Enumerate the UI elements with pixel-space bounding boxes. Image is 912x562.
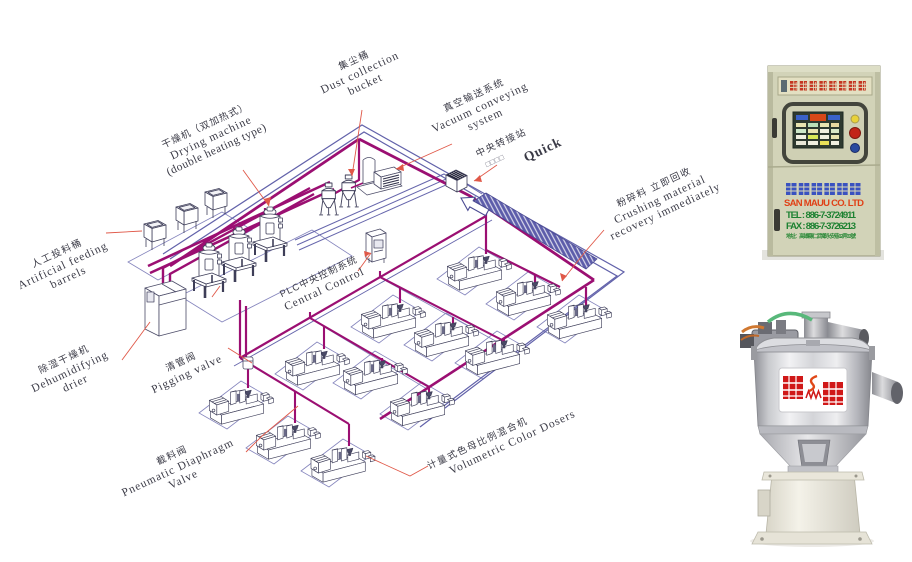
svg-text:FAX : 886-7-3726213: FAX : 886-7-3726213 bbox=[786, 221, 856, 232]
svg-text:Quick: Quick bbox=[521, 134, 564, 165]
svg-text:TEL : 886-7-3724911: TEL : 886-7-3724911 bbox=[786, 210, 857, 221]
svg-text:SAN MAUU CO. LTD: SAN MAUU CO. LTD bbox=[784, 198, 864, 209]
svg-text:地址：高雄縣仁武鄉永安巷12弄33號: 地址：高雄縣仁武鄉永安巷12弄33號 bbox=[786, 232, 856, 240]
